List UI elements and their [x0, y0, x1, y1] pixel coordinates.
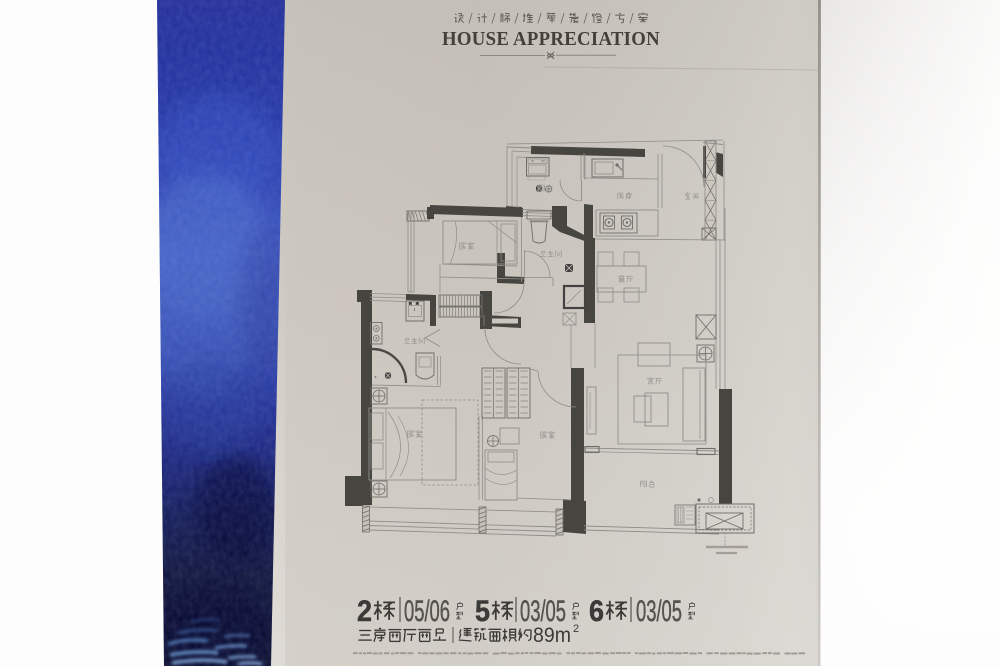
svg-text:2: 2: [573, 623, 579, 635]
svg-text:6: 6: [589, 595, 604, 628]
svg-text:5: 5: [475, 595, 490, 628]
svg-text:03/05: 03/05: [636, 595, 682, 628]
svg-text:2: 2: [357, 595, 372, 628]
svg-text:05/06: 05/06: [404, 595, 450, 628]
svg-text:89m: 89m: [533, 624, 571, 647]
